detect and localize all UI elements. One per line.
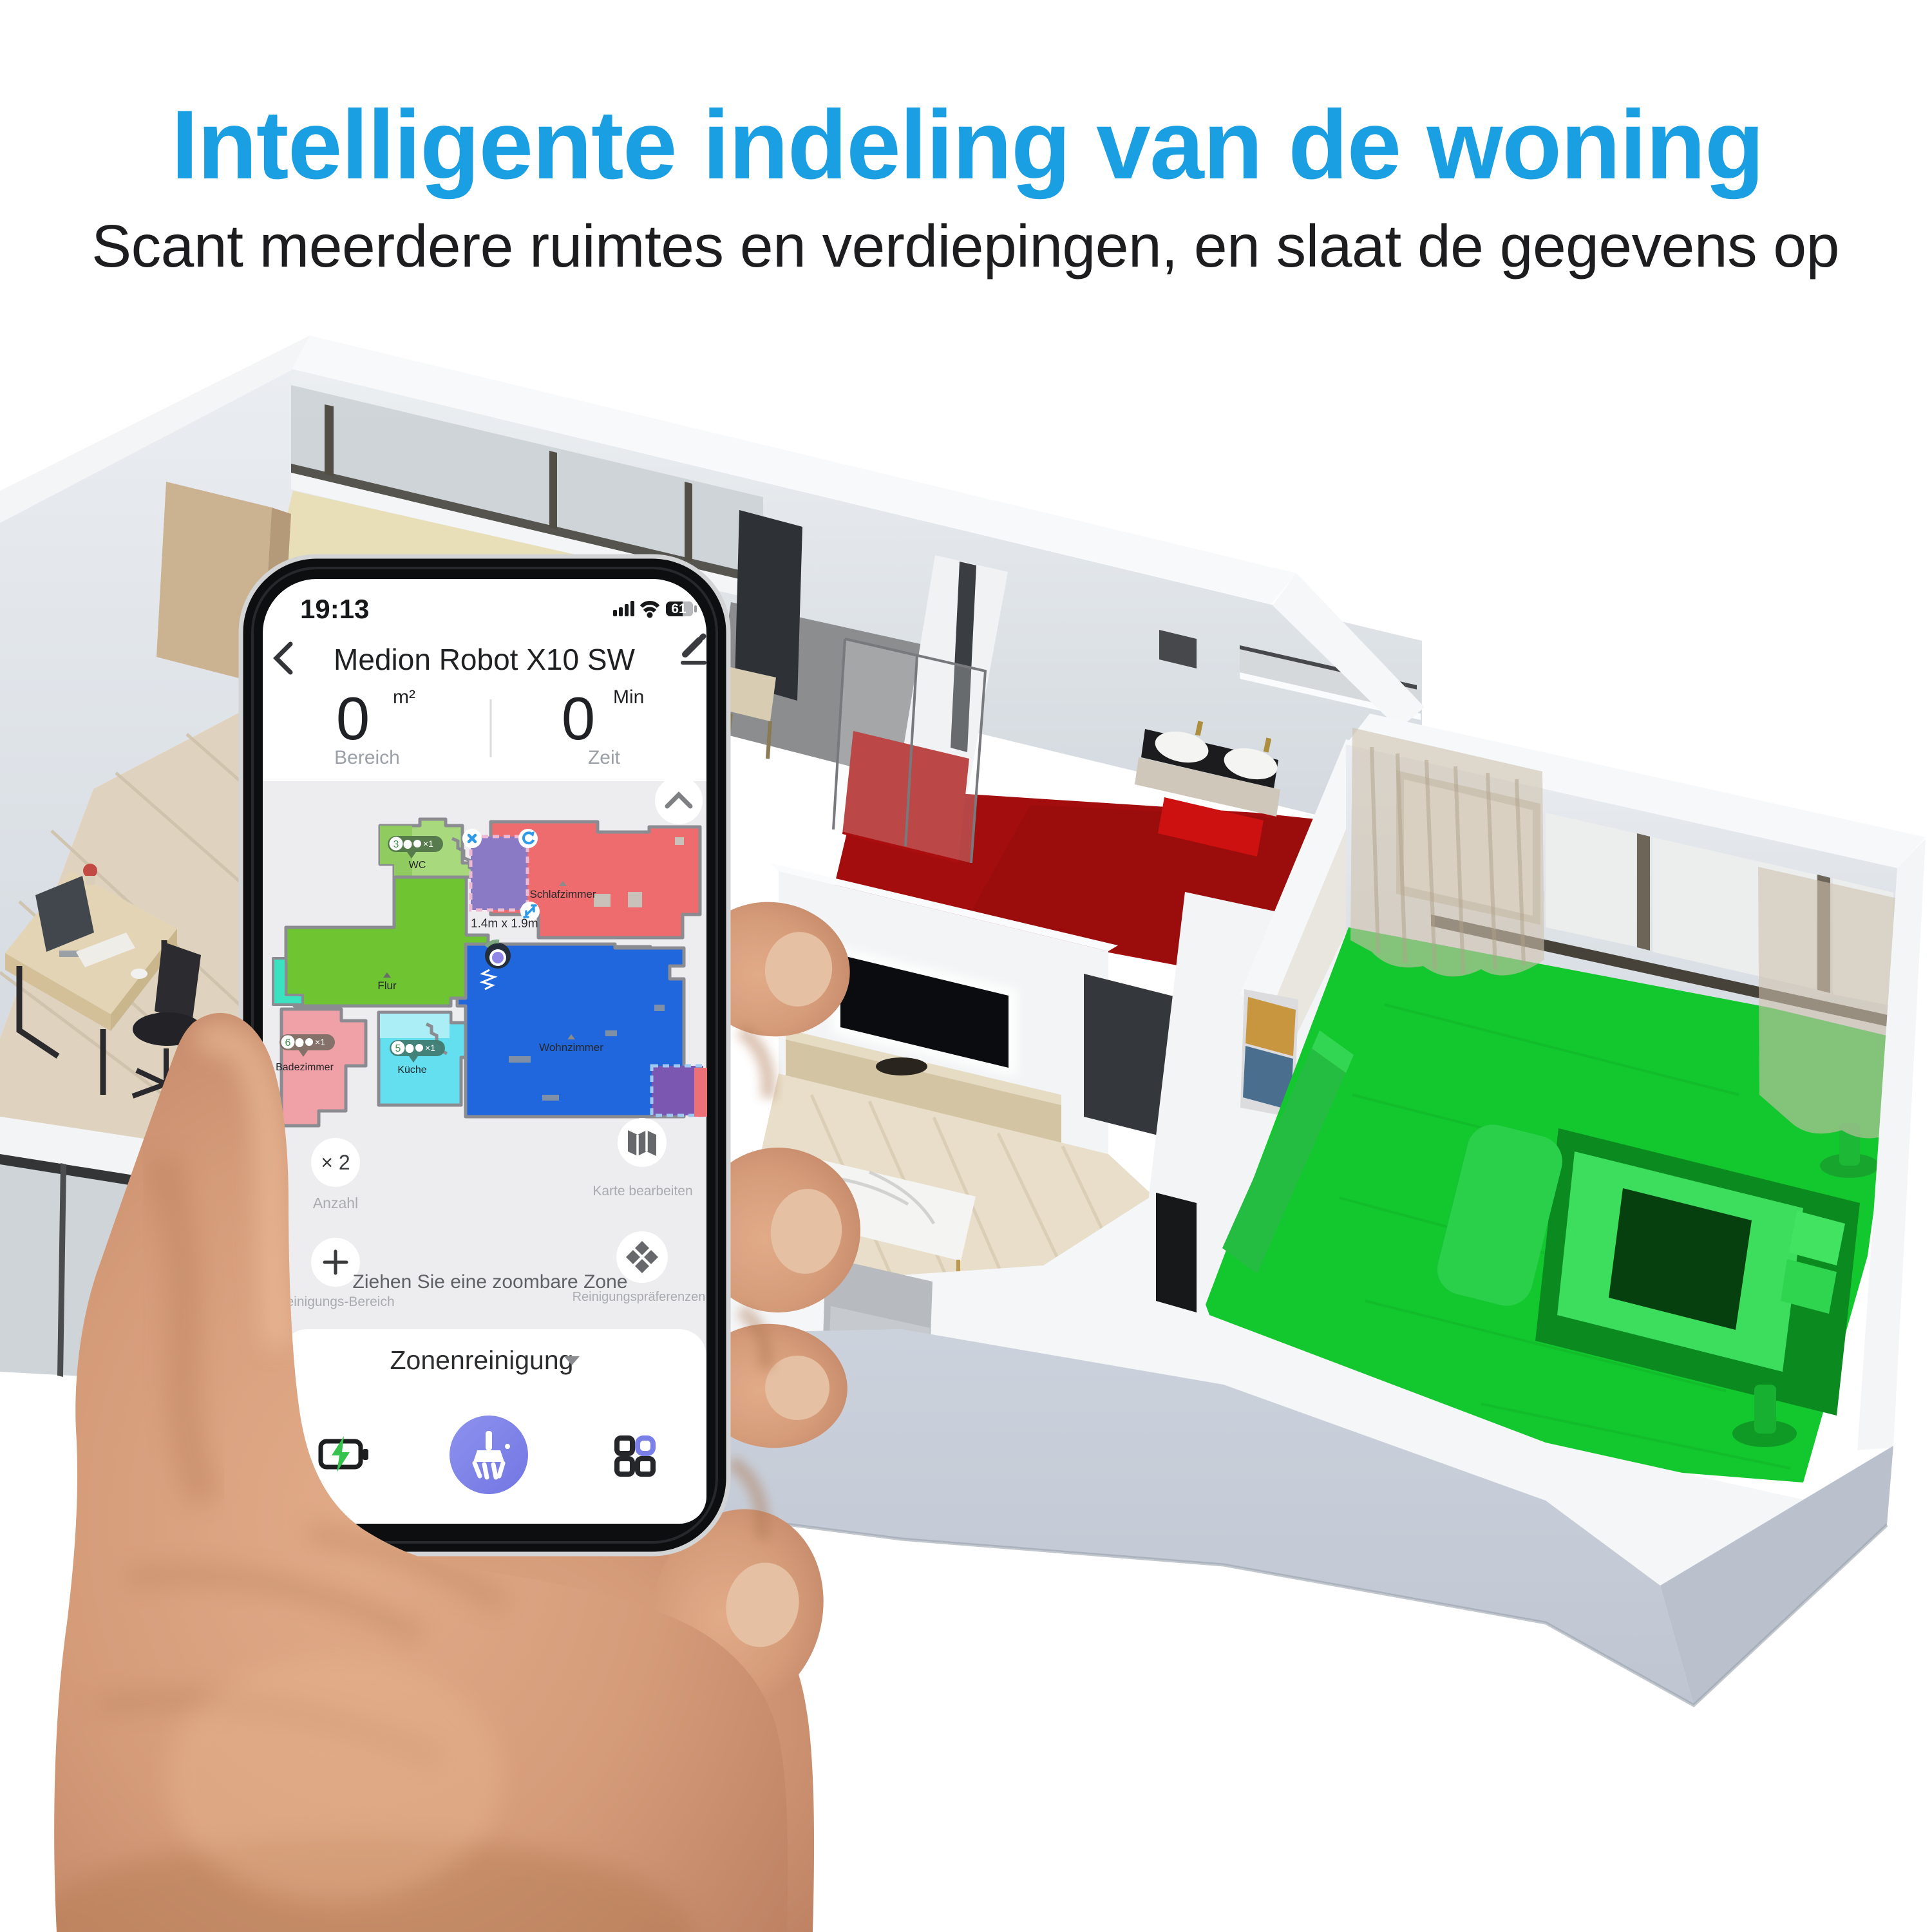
svg-text:0: 0 xyxy=(562,685,595,752)
svg-text:61: 61 xyxy=(671,601,687,616)
svg-text:Zeit: Zeit xyxy=(588,747,621,768)
svg-text:Zonenreinigung: Zonenreinigung xyxy=(390,1345,574,1375)
svg-text:Flur: Flur xyxy=(377,980,397,992)
svg-text:Min: Min xyxy=(613,687,644,708)
svg-text:Wohnzimmer: Wohnzimmer xyxy=(539,1041,603,1054)
svg-text:WC: WC xyxy=(409,860,426,871)
svg-text:×1: ×1 xyxy=(315,1037,325,1047)
svg-text:5: 5 xyxy=(395,1043,401,1054)
svg-text:× 2: × 2 xyxy=(321,1151,350,1174)
svg-text:Schlafzimmer: Schlafzimmer xyxy=(530,888,596,900)
svg-text:Intelligente indeling van de w: Intelligente indeling van de woning xyxy=(171,90,1764,200)
svg-text:Bereich: Bereich xyxy=(334,747,400,768)
svg-text:6: 6 xyxy=(285,1037,291,1048)
svg-text:Scant meerdere ruimtes en verd: Scant meerdere ruimtes en verdiepingen, … xyxy=(91,213,1839,279)
svg-text:×1: ×1 xyxy=(425,1043,435,1053)
svg-text:Reinigungspräferenzen: Reinigungspräferenzen xyxy=(573,1290,706,1304)
svg-text:Karte bearbeiten: Karte bearbeiten xyxy=(592,1184,692,1198)
svg-text:Reinigungs-Bereich: Reinigungs-Bereich xyxy=(276,1294,394,1309)
svg-text:0: 0 xyxy=(336,685,370,752)
svg-text:3: 3 xyxy=(393,839,399,850)
svg-text:×1: ×1 xyxy=(423,838,433,849)
svg-text:Badezimmer: Badezimmer xyxy=(276,1062,334,1073)
svg-text:1.4m x 1.9m: 1.4m x 1.9m xyxy=(471,917,538,931)
svg-text:19:13: 19:13 xyxy=(300,594,369,624)
svg-text:Medion Robot X10 SW: Medion Robot X10 SW xyxy=(334,643,635,676)
svg-text:Küche: Küche xyxy=(397,1065,426,1075)
svg-text:m²: m² xyxy=(393,687,415,708)
svg-text:Anzahl: Anzahl xyxy=(313,1195,358,1211)
